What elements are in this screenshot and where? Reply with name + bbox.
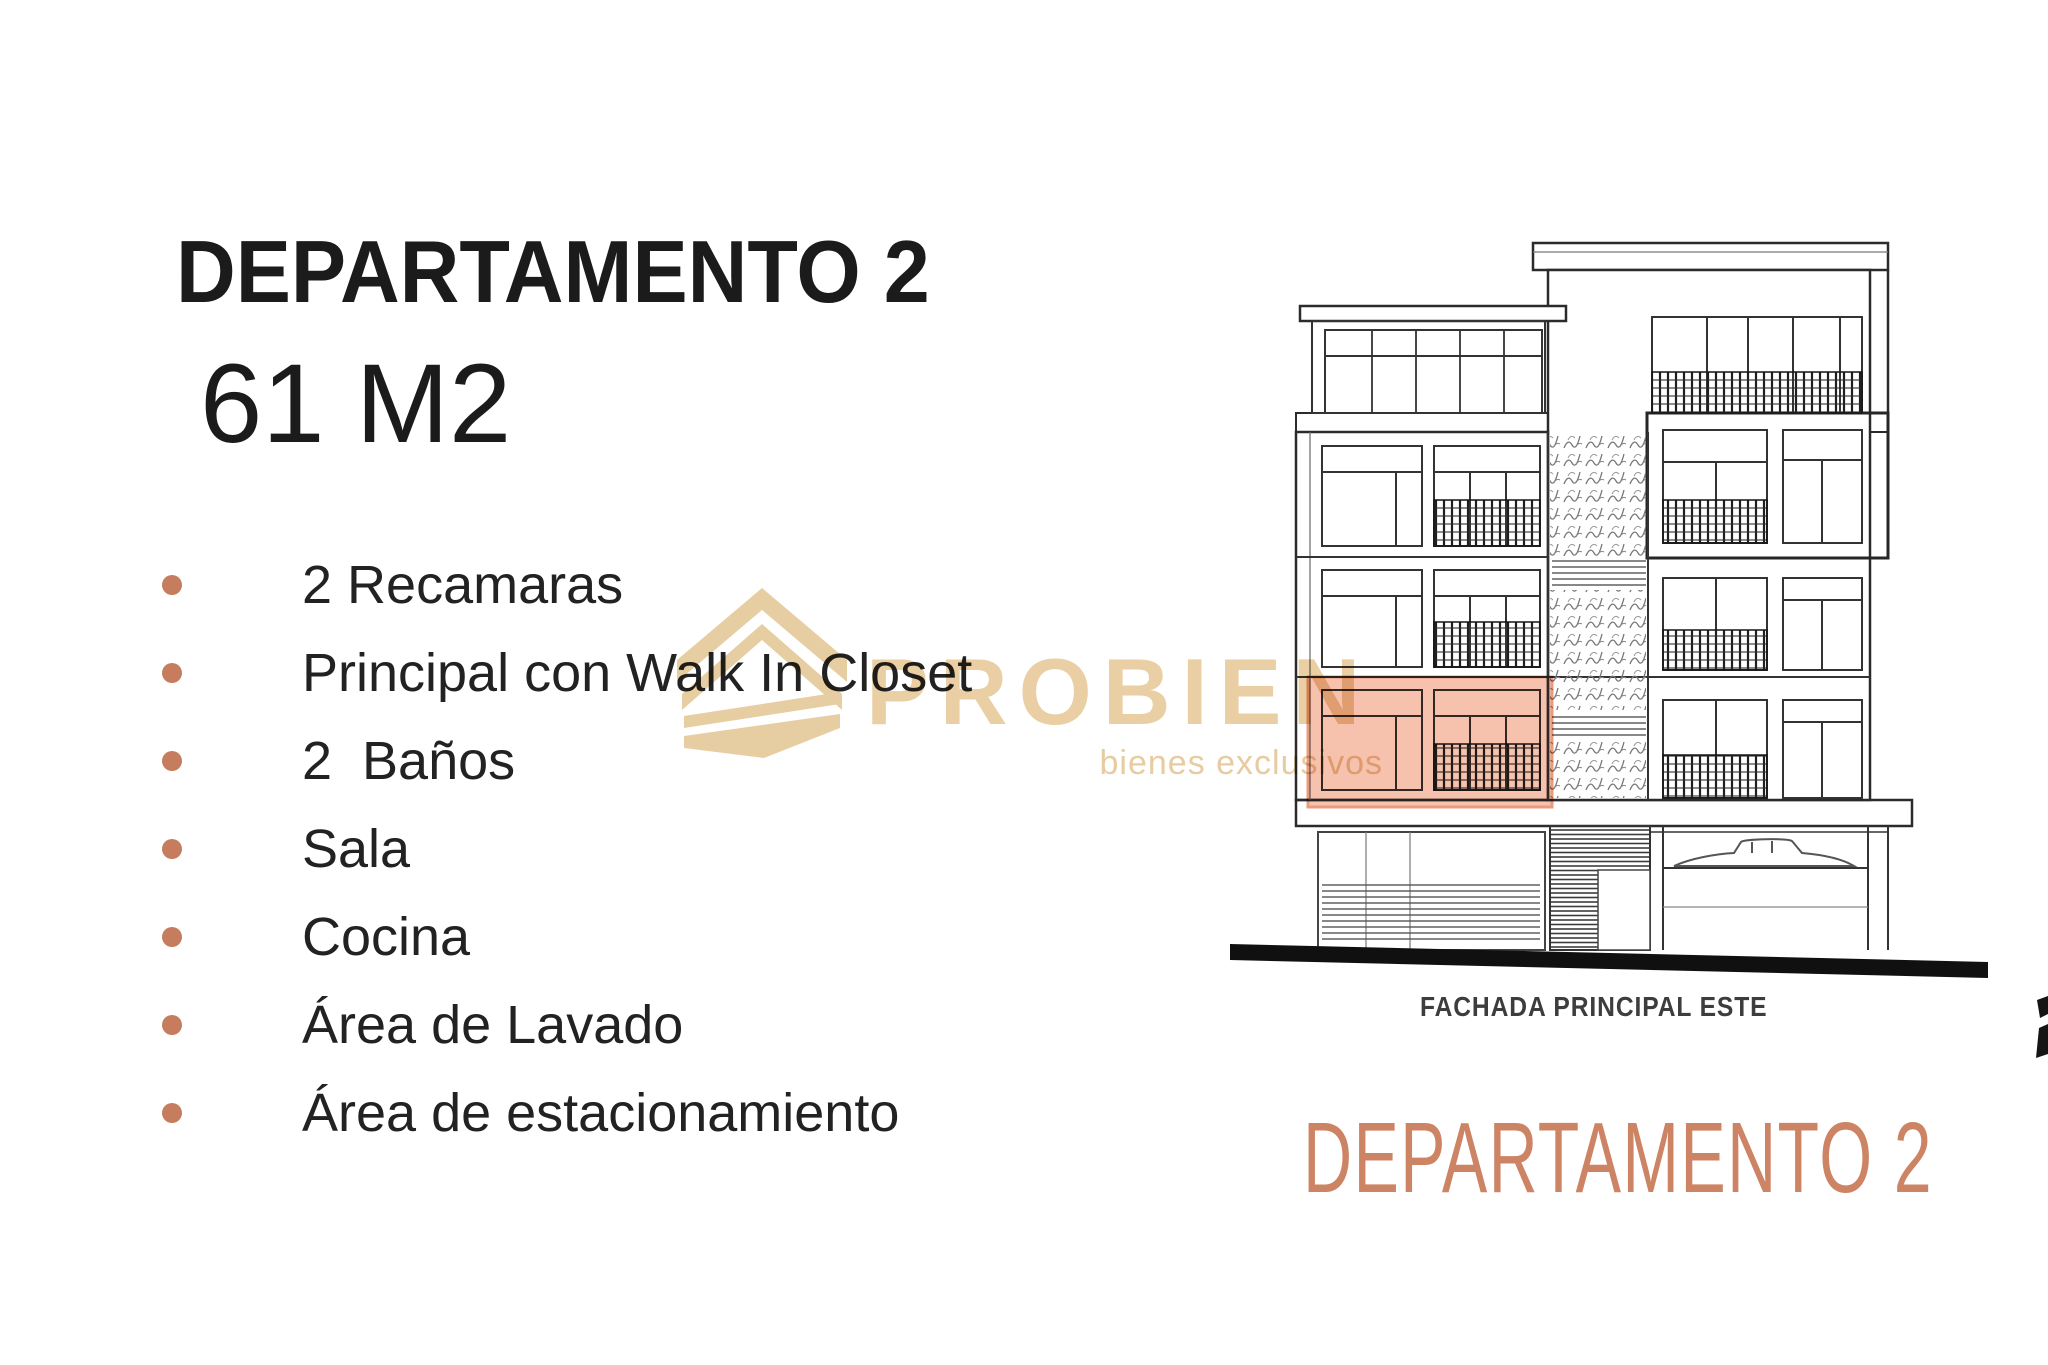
slide: { "slide": { "title": "DEPARTAMENTO 2", … [0, 0, 2048, 1365]
unit-label: DEPARTAMENTO 2 [1303, 1108, 1933, 1208]
elevation-caption: FACHADA PRINCIPAL ESTE [1420, 993, 1767, 1021]
edge-artifact [2036, 996, 2048, 1058]
car-icon [1674, 839, 1854, 866]
building-linework [1296, 243, 1912, 950]
unit-highlight [1308, 677, 1552, 807]
